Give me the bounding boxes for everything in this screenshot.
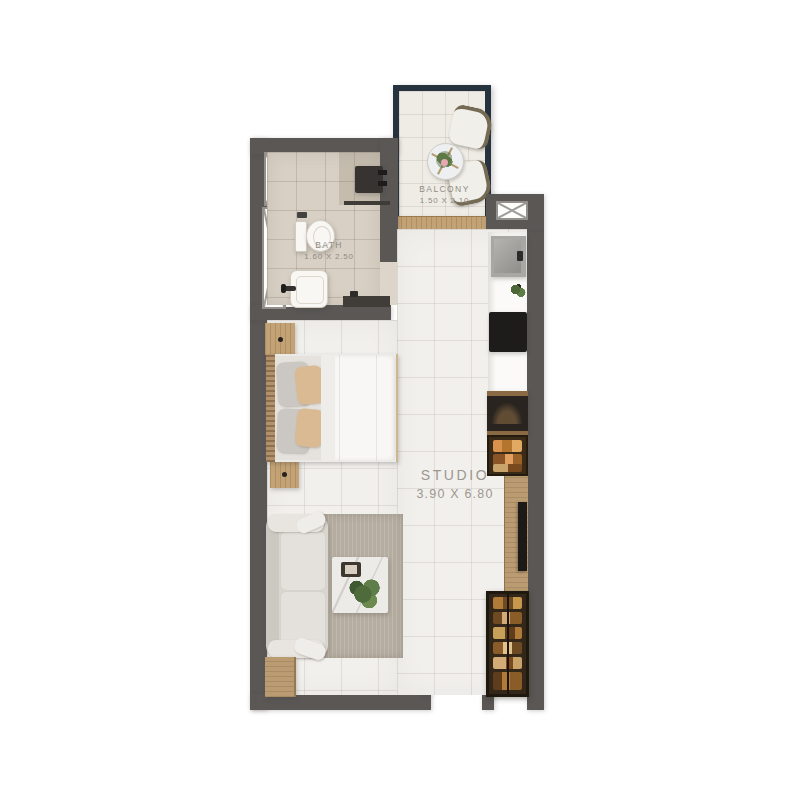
coffee-table xyxy=(332,557,388,613)
wall-bath-right xyxy=(380,138,398,262)
tv xyxy=(518,502,527,571)
kitchen-plant xyxy=(508,281,527,300)
wall-right xyxy=(527,232,544,710)
vanity-shelf xyxy=(343,296,390,307)
wardrobe-divider xyxy=(507,594,509,694)
studio-room-name: STUDIO xyxy=(398,466,512,485)
studio-label: STUDIO 3.90 X 6.80 xyxy=(398,466,512,504)
kitchen-sink xyxy=(491,236,526,277)
bed-headboard xyxy=(266,354,275,462)
sofa-cushion-top xyxy=(280,531,326,591)
nightstand-bottom-lamp xyxy=(282,472,287,477)
balcony-chair-top xyxy=(447,103,494,150)
sofa xyxy=(266,516,328,656)
oven xyxy=(487,391,528,435)
bath-label: BATH 1.60 X 2.50 xyxy=(293,239,365,263)
bed xyxy=(266,354,398,462)
shower-bracket xyxy=(378,170,387,175)
balcony-room-dims: 1.50 X 2.10 xyxy=(407,195,482,207)
nightstand-bottom xyxy=(270,460,299,488)
coffee-table-plant xyxy=(344,571,386,613)
shower-partition xyxy=(344,201,390,205)
balcony-table-flower xyxy=(441,159,448,166)
balcony-room-name: BALCONY xyxy=(407,183,482,195)
sofa-back xyxy=(266,521,279,651)
studio-room-dims: 3.90 X 6.80 xyxy=(398,485,512,504)
bed-duvet-fold xyxy=(321,355,335,461)
cooktop xyxy=(489,312,527,352)
bath-room-dims: 1.60 X 2.50 xyxy=(293,251,365,263)
side-table xyxy=(265,657,296,697)
pantry-row-1 xyxy=(493,440,522,452)
shower-bracket-2 xyxy=(378,181,387,186)
nightstand-top-lamp xyxy=(278,337,283,342)
balcony-label: BALCONY 1.50 X 2.10 xyxy=(407,183,482,207)
toilet-tap xyxy=(297,212,307,218)
vanity-tap xyxy=(350,291,358,297)
bath-room-name: BATH xyxy=(293,239,365,251)
balcony: BALCONY 1.50 X 2.10 xyxy=(393,85,491,218)
shaft-cross-icon xyxy=(498,203,526,218)
kitchen-faucet xyxy=(517,251,523,261)
wardrobe xyxy=(486,591,529,697)
shaft-duct-top-right xyxy=(496,201,528,220)
oven-highlight xyxy=(491,402,523,424)
balcony-table xyxy=(427,143,464,180)
nightstand-top xyxy=(265,323,295,355)
floor-plan: BALCONY 1.50 X 2.10 xyxy=(0,0,800,800)
sink-faucet-knob xyxy=(281,284,286,293)
bathroom-sink-basin xyxy=(296,276,324,304)
